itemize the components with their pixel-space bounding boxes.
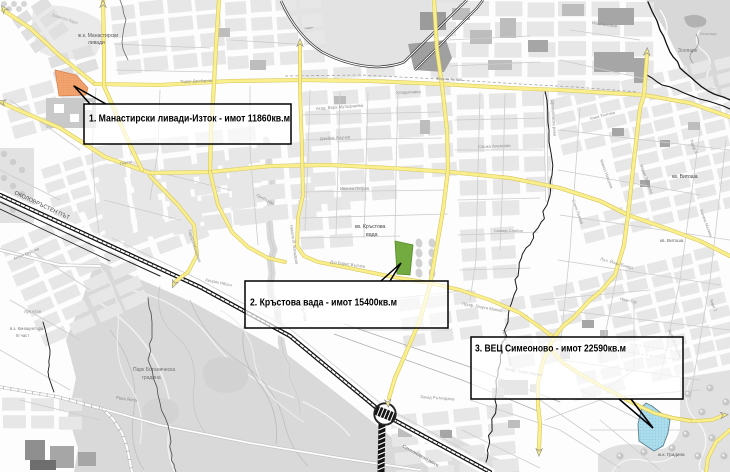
svg-text:III част: III част: [16, 333, 29, 338]
svg-text:1. Манастирски ливади-Изток -: 1. Манастирски ливади-Изток - имот 11860…: [89, 113, 290, 125]
svg-text:ливади: ливади: [88, 40, 105, 46]
svg-text:Лук Атон: Лук Атон: [24, 309, 42, 314]
svg-text:вада: вада: [366, 232, 378, 238]
svg-text:Иванка Петров: Иванка Петров: [340, 186, 370, 191]
svg-text:Филип Кутев: Филип Кутев: [436, 76, 463, 82]
svg-text:ж.к. Градина: ж.к. Градина: [658, 452, 685, 457]
svg-text:Хладилника: Хладилника: [396, 89, 422, 95]
svg-text:2. Кръстова вада - имот 15400к: 2. Кръстова вада - имот 15400кв.м: [250, 297, 397, 309]
svg-text:ж.к. Манастирски: ж.к. Манастирски: [78, 33, 118, 39]
svg-text:кв. Кръстова: кв. Кръстова: [355, 224, 386, 230]
svg-text:Екзопарк: Екзопарк: [700, 31, 717, 36]
svg-text:3. ВЕЦ Симеоново - имот 22590к: 3. ВЕЦ Симеоново - имот 22590кв.м: [475, 343, 626, 355]
svg-text:кв. Витоша: кв. Витоша: [672, 174, 698, 180]
svg-text:кв. Витоша: кв. Витоша: [660, 238, 684, 243]
svg-text:Зоопарк: Зоопарк: [678, 48, 698, 54]
svg-text:Парк Ботаническа: Парк Ботаническа: [133, 367, 175, 373]
svg-text:градина: градина: [142, 375, 161, 381]
svg-text:в.з. Киноцентъра: в.з. Киноцентъра: [10, 326, 44, 331]
svg-text:Сиамф-Слабин: Сиамф-Слабин: [494, 228, 523, 233]
